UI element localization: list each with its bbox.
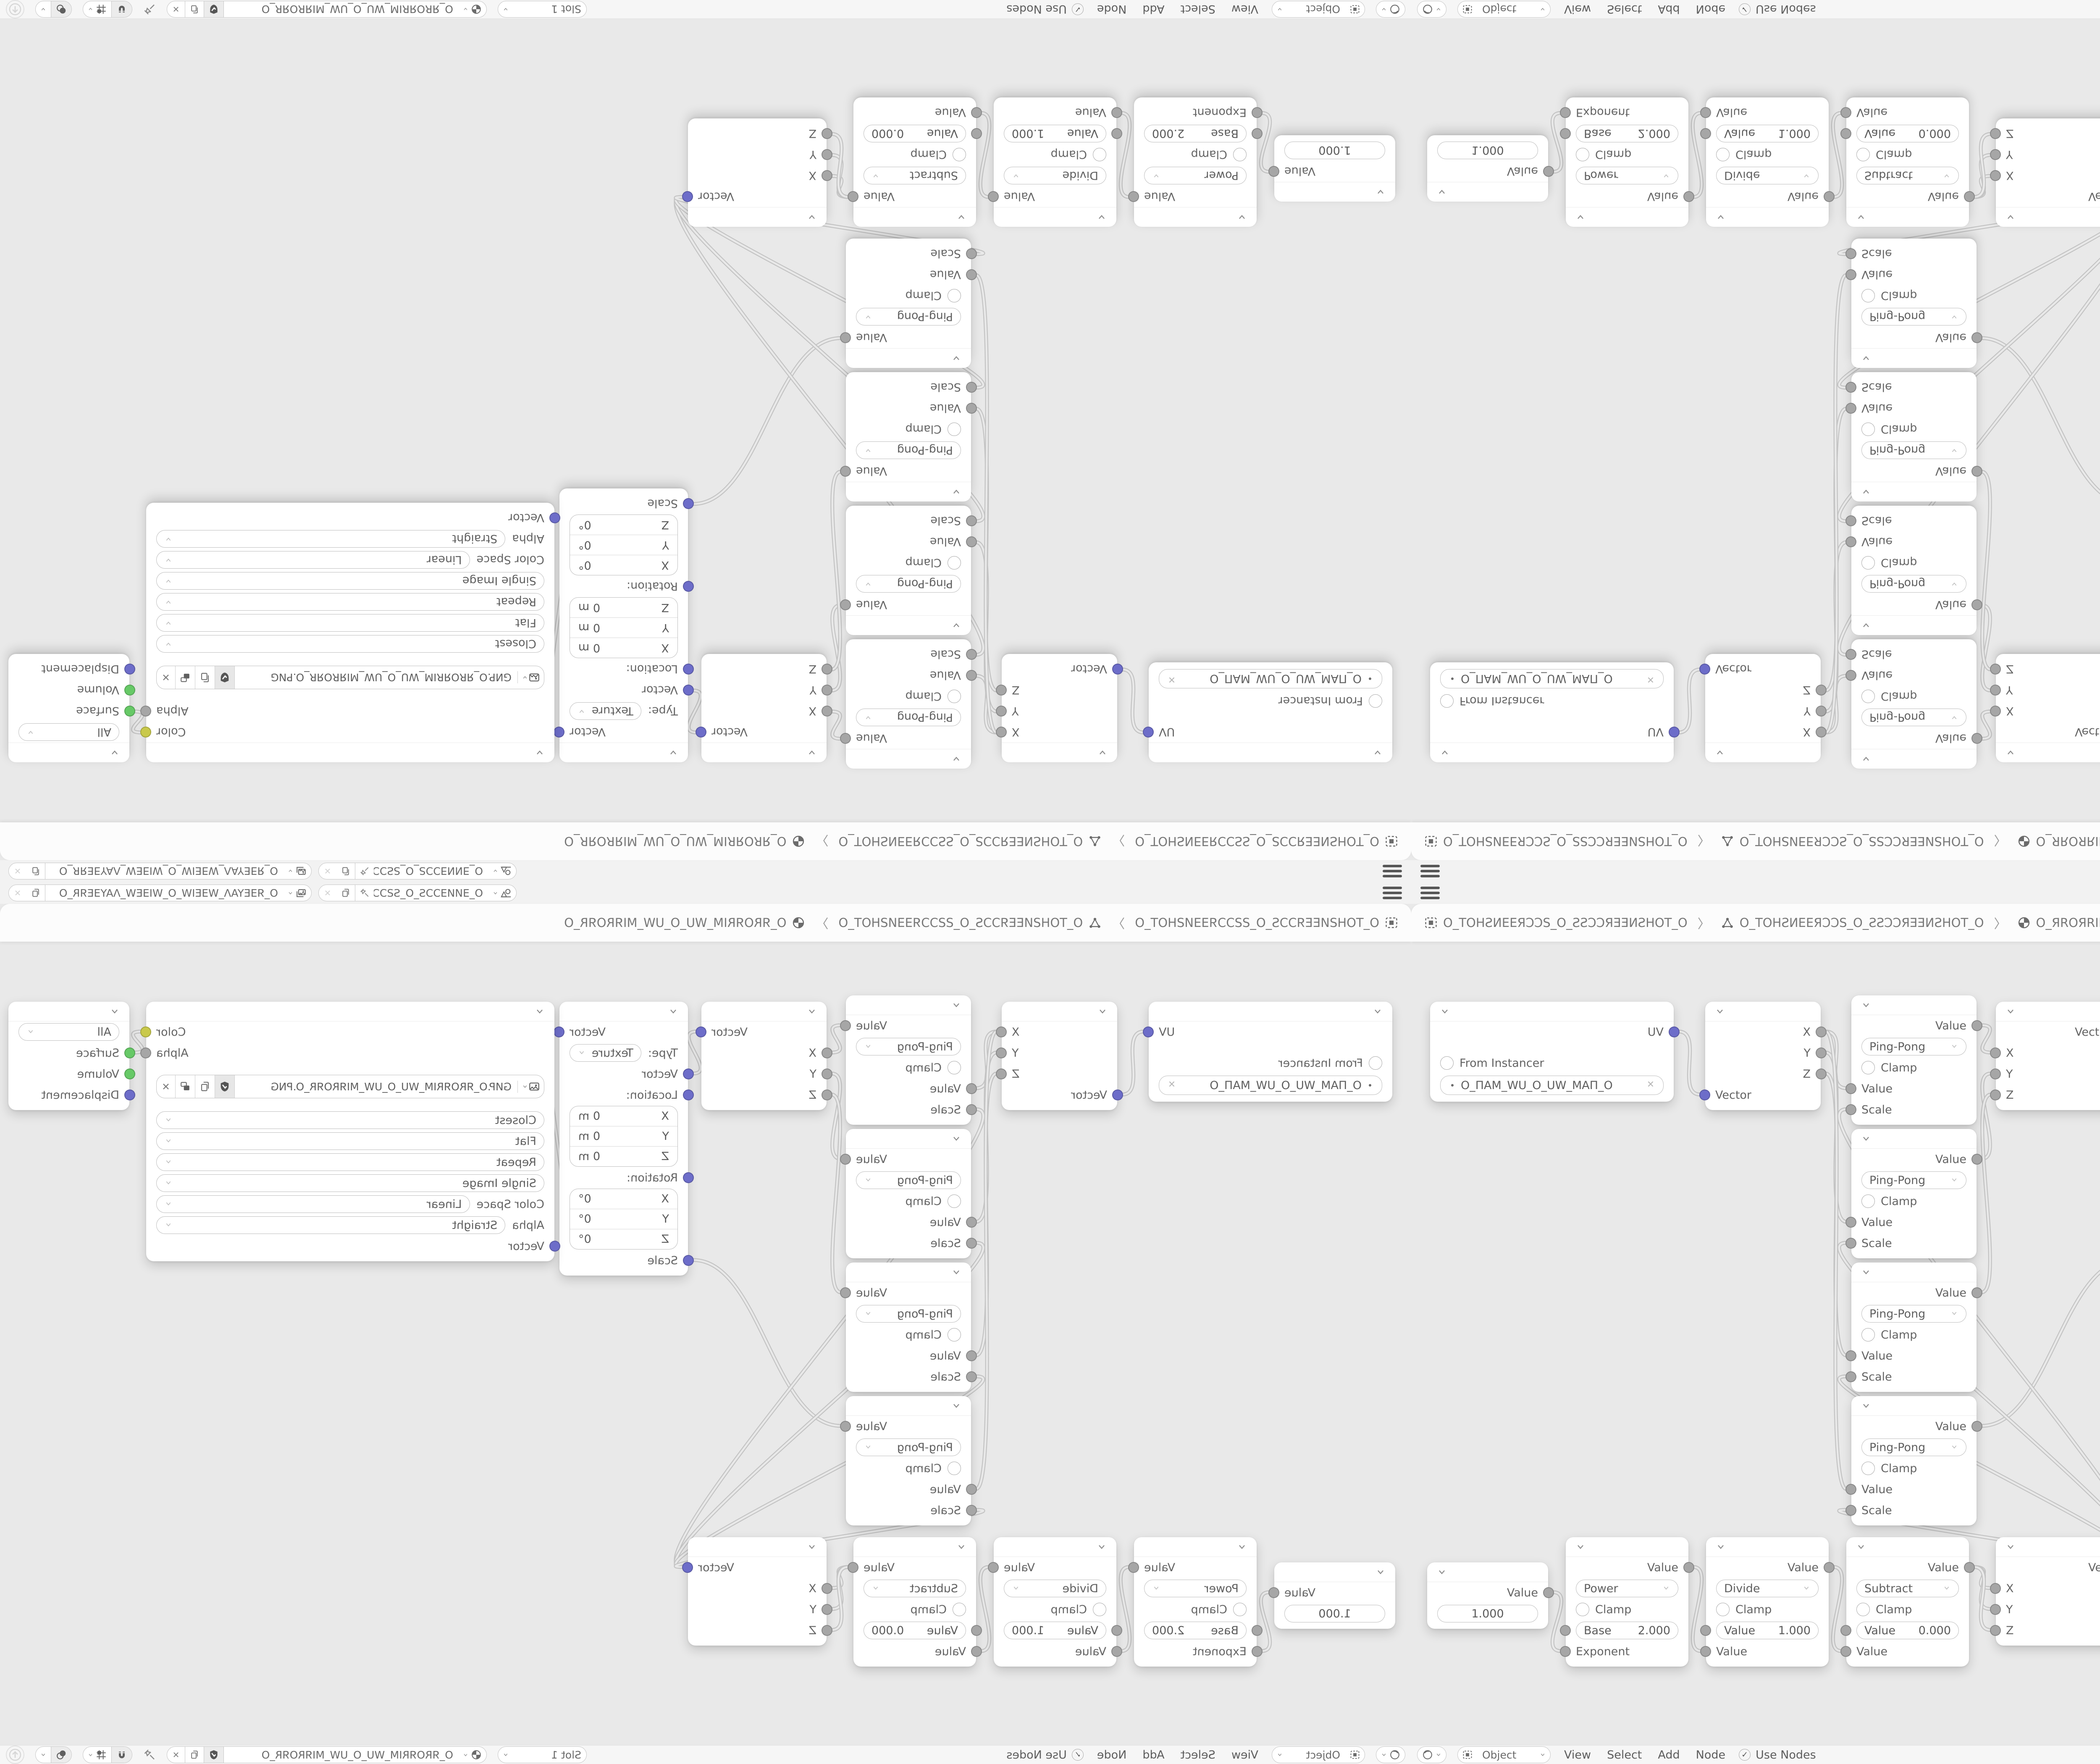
chevron-down-icon[interactable] <box>1856 212 1866 223</box>
node-value[interactable]: Value1.000 <box>1427 1562 1548 1629</box>
checkbox-clamp[interactable] <box>1716 148 1730 161</box>
slot-dropdown[interactable]: Slot 1 <box>498 1 587 18</box>
socket-vector[interactable] <box>696 727 706 738</box>
node-header-collapse[interactable] <box>1851 348 1977 368</box>
copy-icon[interactable] <box>195 666 215 689</box>
socket-value[interactable] <box>840 599 851 610</box>
socket-z[interactable] <box>1990 1089 2001 1100</box>
material-name[interactable]: O_ЯROЯRIM_WU_O_UW_MIЯROЯR_O <box>224 3 458 16</box>
menu-node[interactable]: Node <box>1693 1748 1728 1761</box>
shader-editor-icon[interactable] <box>1376 1 1405 17</box>
editor-type-dropdown[interactable] <box>1376 1746 1405 1763</box>
node-header-collapse[interactable] <box>846 615 971 635</box>
socket-scale[interactable] <box>966 1104 977 1115</box>
chevron-down-icon[interactable] <box>1097 747 1108 758</box>
dropdown-ping-pong[interactable]: Ping-Pong <box>856 1305 961 1323</box>
node-pingpong_2[interactable]: ValuePing-PongClampValueScale <box>846 1129 971 1258</box>
value-field[interactable]: Value0.000 <box>864 125 966 142</box>
socket-y[interactable] <box>996 706 1007 717</box>
node-header-collapse[interactable] <box>1134 207 1257 227</box>
dropdown-subtract[interactable]: Subtract <box>864 1580 966 1597</box>
socket-vector[interactable] <box>549 512 560 523</box>
socket-value[interactable] <box>1824 1562 1835 1573</box>
scene-icon[interactable] <box>488 863 516 879</box>
chevron-down-icon[interactable] <box>951 1400 962 1411</box>
menu-add[interactable]: Add <box>1655 1748 1682 1761</box>
value-field[interactable]: Base2.000 <box>1144 125 1247 142</box>
socket-vector[interactable] <box>554 1026 564 1037</box>
dropdown-power[interactable]: Power <box>1144 1580 1247 1597</box>
dropdown-flat[interactable]: Flat <box>156 1132 544 1150</box>
node-math_power[interactable]: ValuePowerClampBase2.000Exponent <box>1566 97 1688 227</box>
scene-name[interactable]: O_ƎИИƎƆƆS_O_SƧƆƆƎƎИ… <box>374 865 488 877</box>
dropdown-closest[interactable]: Closest <box>156 635 544 653</box>
chevron-down-icon[interactable] <box>1097 1006 1108 1017</box>
node-uv_map[interactable]: UVFrom InstancerO_ПAM_WU_O_UW_MAП_O <box>1149 662 1392 762</box>
socket-field[interactable] <box>1700 1625 1711 1636</box>
chevron-down-icon[interactable] <box>1375 1567 1386 1578</box>
socket-x[interactable] <box>996 1026 1007 1037</box>
vector-field-z[interactable]: Z0° <box>570 515 677 535</box>
chevron-down-icon[interactable] <box>1236 1541 1247 1552</box>
node-combine_xyz_b[interactable]: VectorXYZ <box>688 1537 827 1646</box>
node-header-collapse[interactable] <box>1851 482 1977 501</box>
chevron-down-icon[interactable] <box>2005 212 2016 223</box>
checkbox-from-instancer[interactable] <box>1440 1056 1454 1070</box>
shader-editor-icon[interactable] <box>1417 1 1446 17</box>
node-header-collapse[interactable] <box>1149 743 1392 762</box>
chevron-down-icon[interactable] <box>1439 1006 1450 1017</box>
chevron-down-icon[interactable] <box>668 1006 679 1017</box>
socket-rotation[interactable] <box>683 581 694 592</box>
socket-value[interactable] <box>1845 536 1856 547</box>
socket-value[interactable] <box>1971 1020 1982 1031</box>
node-header-collapse[interactable] <box>1566 207 1688 227</box>
socket-scale[interactable] <box>966 382 977 393</box>
use-nodes-toggle[interactable]: ✓Use Nodes <box>1739 3 1816 16</box>
chevron-down-icon[interactable] <box>1439 747 1450 758</box>
menu-view[interactable]: View <box>1229 3 1261 16</box>
breadcrumb-item[interactable]: O_TOHƧИEEЯƆƆS_O_ƧƧƆƆЯƎƎИƧHOT_O <box>1135 916 1399 930</box>
dropdown-texture[interactable]: Texture <box>570 1044 641 1062</box>
node-header-collapse[interactable] <box>1996 1002 2100 1021</box>
node-pingpong_4[interactable]: ValuePing-PongClampValueScale <box>846 1396 971 1525</box>
breadcrumb-item[interactable]: O_TOHƧИEEЯƆƆS_O_ƧƧƆƆЯƎƎИƧHOT_O <box>1720 834 1984 848</box>
checkbox-clamp[interactable] <box>1233 148 1247 161</box>
socket-uv[interactable] <box>1143 1026 1154 1037</box>
close-icon[interactable] <box>157 1075 176 1098</box>
value-field[interactable]: Value1.000 <box>1716 1622 1819 1639</box>
socket-uv[interactable] <box>1669 1026 1680 1037</box>
image-selector[interactable]: GИP.O_ЯROЯRIM_WU_O_UW_MIЯROЯR_O.PNG <box>156 666 544 689</box>
socket-value[interactable] <box>840 733 851 744</box>
socket-value[interactable] <box>1111 107 1122 118</box>
chevron-down-icon[interactable] <box>1372 1006 1383 1017</box>
socket-y[interactable] <box>996 1047 1007 1058</box>
shader-type-dropdown[interactable]: Object <box>1457 1746 1551 1763</box>
socket-color[interactable] <box>140 1026 151 1037</box>
checkbox-clamp[interactable] <box>1861 1462 1875 1475</box>
socket-field[interactable] <box>1840 1625 1851 1636</box>
dropdown-ping-pong[interactable]: Ping-Pong <box>856 1438 961 1456</box>
use-nodes-checkbox[interactable]: ✓ <box>1739 1749 1751 1761</box>
socket-vector[interactable] <box>696 1026 706 1037</box>
breadcrumb-item[interactable]: O_TOHƧИEEЯƆƆS_O_ƧƧƆƆЯƎƎИƧHOT_O <box>1720 916 1984 930</box>
node-header-collapse[interactable] <box>994 207 1116 227</box>
value-field[interactable]: Value0.000 <box>1856 1622 1959 1639</box>
uv-map-selector[interactable]: O_ПAM_WU_O_UW_MAП_O <box>1440 1076 1664 1095</box>
checkbox-clamp[interactable] <box>948 690 961 703</box>
image-name[interactable]: GИP.O_ЯROЯRIM_WU_O_UW_MIЯROЯR_O.PNG <box>235 1081 518 1093</box>
node-header-collapse[interactable] <box>1851 1263 1977 1282</box>
shader-type-value[interactable]: Object <box>1477 1749 1535 1761</box>
dropdown-repeat[interactable]: Repeat <box>156 593 544 611</box>
value-field[interactable]: Base2.000 <box>1576 125 1678 142</box>
socket-z[interactable] <box>1816 1068 1827 1079</box>
image-selector[interactable]: GИP.O_ЯROЯRIM_WU_O_UW_MIЯROЯR_O.PNG <box>156 1075 544 1098</box>
breadcrumb-item[interactable]: O_TOHƧИEEЯƆƆS_O_ƧƧƆƆЯƎƎИƧHOT_O <box>1424 916 1688 930</box>
socket-vector[interactable] <box>1112 1089 1123 1100</box>
dropdown-ping-pong[interactable]: Ping-Pong <box>1861 1305 1966 1323</box>
socket-value[interactable] <box>1971 466 1982 477</box>
node-header-collapse[interactable] <box>1851 749 1977 769</box>
stack-icon[interactable] <box>176 666 195 689</box>
menu-node[interactable]: Node <box>1095 1748 1129 1761</box>
socket-z[interactable] <box>822 1089 832 1100</box>
dropdown-closest[interactable]: Closest <box>156 1111 544 1129</box>
shader-type-dropdown[interactable]: Object <box>1272 1 1365 18</box>
socket-field[interactable] <box>1252 1625 1263 1636</box>
socket-value[interactable] <box>1971 1287 1982 1298</box>
value-field[interactable]: 1.000 <box>1284 142 1385 159</box>
chevron-down-icon[interactable] <box>956 1541 967 1552</box>
node-header-collapse[interactable] <box>846 482 971 501</box>
socket-value[interactable] <box>1683 191 1694 202</box>
socket-rotation[interactable] <box>683 1172 694 1183</box>
node-pingpong_1[interactable]: ValuePing-PongClampValueScale <box>846 995 971 1125</box>
socket-scale[interactable] <box>1845 1371 1856 1382</box>
menu-select[interactable]: Select <box>1604 3 1644 16</box>
socket-value[interactable] <box>1700 107 1711 118</box>
socket-field[interactable] <box>1111 128 1122 139</box>
socket-uv[interactable] <box>1143 727 1154 738</box>
chevron-down-icon[interactable] <box>1372 747 1383 758</box>
pin-icon[interactable] <box>355 885 374 901</box>
menu-view[interactable]: View <box>1562 1748 1593 1761</box>
chevron-down-icon[interactable] <box>1861 753 1872 764</box>
node-image_texture[interactable]: ColorAlphaGИP.O_ЯROЯRIM_WU_O_UW_MIЯROЯR_… <box>146 503 554 762</box>
image-name[interactable]: GИP.O_ЯROЯRIM_WU_O_UW_MIЯROЯR_O.PNG <box>235 672 518 684</box>
socket-field[interactable] <box>1560 128 1571 139</box>
chevron-down-icon[interactable] <box>951 1133 962 1144</box>
copy-icon[interactable] <box>185 1747 204 1763</box>
node-header-collapse[interactable] <box>853 207 976 227</box>
socket-y[interactable] <box>1990 1068 2001 1079</box>
scene-selector[interactable]: O_ƎИИƎƆƆS_O_SƧƆƆƎƎИ… <box>318 863 517 879</box>
close-icon[interactable] <box>167 1747 185 1763</box>
node-header-collapse[interactable] <box>846 348 971 368</box>
socket-volume[interactable] <box>124 685 135 696</box>
node-math_subtract[interactable]: ValueSubtractClampValue0.000Value <box>853 1537 976 1667</box>
socket-field[interactable] <box>1111 1625 1122 1636</box>
shield-check-icon[interactable] <box>204 1 224 17</box>
socket-field[interactable] <box>1560 1625 1571 1636</box>
node-header-collapse[interactable] <box>846 749 971 769</box>
chevron-down-icon[interactable] <box>109 747 120 758</box>
checkbox-from-instancer[interactable] <box>1369 694 1382 708</box>
value-field[interactable]: 1.000 <box>1437 1605 1538 1622</box>
scene-icon[interactable] <box>488 885 516 901</box>
checkbox-clamp[interactable] <box>1093 1603 1106 1616</box>
socket-value[interactable] <box>1111 1646 1122 1657</box>
checkbox-clamp[interactable] <box>1856 148 1870 161</box>
socket-x[interactable] <box>1816 1026 1827 1037</box>
node-value[interactable]: Value1.000 <box>1274 135 1395 202</box>
dropdown-linear[interactable]: Linear <box>156 1195 470 1213</box>
node-header-collapse[interactable] <box>846 1396 971 1416</box>
pin-icon[interactable] <box>143 1748 156 1761</box>
dropdown-all[interactable]: All <box>18 1023 119 1041</box>
slot-value[interactable]: Slot 1 <box>513 3 586 16</box>
chevron-down-icon[interactable] <box>951 486 962 497</box>
chevron-down-icon[interactable] <box>806 212 817 223</box>
shader-editor-icon[interactable] <box>1376 1747 1405 1763</box>
slot-value[interactable]: Slot 1 <box>513 1749 586 1761</box>
node-header-collapse[interactable] <box>1996 207 2100 227</box>
socket-field[interactable] <box>971 128 982 139</box>
node-pingpong_4[interactable]: ValuePing-PongClampValueScale <box>1851 1396 1977 1525</box>
menu-add[interactable]: Add <box>1140 3 1167 16</box>
node-header-collapse[interactable] <box>846 1129 971 1149</box>
node-image_texture[interactable]: ColorAlphaGИP.O_ЯROЯRIM_WU_O_UW_MIЯROЯR_… <box>146 1002 554 1261</box>
socket-scale[interactable] <box>1845 1104 1856 1115</box>
socket-field[interactable] <box>1840 128 1851 139</box>
socket-value[interactable] <box>1845 1217 1856 1228</box>
copy-icon[interactable] <box>336 863 355 879</box>
chevron-down-icon[interactable] <box>806 747 817 758</box>
dropdown-ping-pong[interactable]: Ping-Pong <box>1861 308 1966 325</box>
socket-scale[interactable] <box>966 1238 977 1249</box>
node-header-collapse[interactable] <box>1427 182 1548 202</box>
node-separate_xyz[interactable]: XYZVector <box>1705 1002 1821 1110</box>
node-math_divide[interactable]: ValueDivideClampValue1.000Value <box>1706 97 1829 227</box>
node-header-collapse[interactable] <box>688 1537 827 1557</box>
socket-field[interactable] <box>971 1625 982 1636</box>
shader-type-dropdown[interactable]: Object <box>1272 1746 1365 1763</box>
socket-value[interactable] <box>1845 1350 1856 1361</box>
breadcrumb-item[interactable]: O_ЯROЯRIM_WU_O_UW_MIЯROЯR_O <box>2017 834 2100 848</box>
chevron-down-icon[interactable] <box>2005 1006 2016 1017</box>
chevron-down-icon[interactable] <box>1375 186 1386 197</box>
breadcrumb-item[interactable]: O_ЯROЯRIM_WU_O_UW_MIЯROЯR_O <box>2017 916 2100 930</box>
editor-type-dropdown[interactable] <box>1376 1 1405 18</box>
checkbox-clamp[interactable] <box>1861 289 1875 302</box>
shield-check-icon[interactable] <box>204 1747 224 1763</box>
chevron-down-icon[interactable] <box>1096 212 1107 223</box>
socket-value[interactable] <box>1700 1646 1711 1657</box>
node-combine_xyz_a[interactable]: VectorXYZ <box>701 654 827 762</box>
node-math_power[interactable]: ValuePowerClampBase2.000Exponent <box>1134 1537 1257 1667</box>
socket-value[interactable] <box>1845 670 1856 681</box>
stack-icon[interactable] <box>176 1075 195 1098</box>
socket-vector[interactable] <box>683 1068 694 1079</box>
socket-field[interactable] <box>1252 128 1263 139</box>
snap-grid-icon[interactable] <box>83 1 112 17</box>
socket-y[interactable] <box>822 149 832 160</box>
node-material_output[interactable]: AllSurfaceVolumeDisplacement <box>8 654 129 762</box>
socket-value[interactable] <box>840 332 851 343</box>
socket-scale[interactable] <box>1845 1505 1856 1516</box>
socket-location[interactable] <box>683 1089 694 1100</box>
socket-location[interactable] <box>683 664 694 675</box>
breadcrumb-item[interactable]: O_TOHƧИEEЯƆƆS_O_ƧƧƆƆЯƎƎИƧHOT_O <box>1135 834 1399 848</box>
uv-map-selector[interactable]: O_ПAM_WU_O_UW_MAП_O <box>1159 1076 1382 1095</box>
node-header-collapse[interactable] <box>1996 1537 2100 1557</box>
dropdown-all[interactable]: All <box>18 723 119 741</box>
vector-field-y[interactable]: Y0 m <box>570 1126 677 1146</box>
chevron-down-icon[interactable] <box>668 747 679 758</box>
vector-field-y[interactable]: Y0° <box>570 1209 677 1229</box>
chevron-down-icon[interactable] <box>534 747 545 758</box>
breadcrumb-item[interactable]: O_TOHƧИEEЯƆƆS_O_ƧƧƆƆЯƎƎИƧHOT_O <box>838 916 1102 930</box>
node-header-collapse[interactable] <box>146 743 554 762</box>
chevron-down-icon[interactable] <box>806 1006 817 1017</box>
copy-icon[interactable] <box>185 1 204 17</box>
node-math_divide[interactable]: ValueDivideClampValue1.000Value <box>994 97 1116 227</box>
socket-x[interactable] <box>822 1047 832 1058</box>
socket-scale[interactable] <box>966 1505 977 1516</box>
socket-value[interactable] <box>840 1421 851 1432</box>
chevron-down-icon[interactable] <box>951 620 962 631</box>
socket-scale[interactable] <box>966 649 977 660</box>
socket-value[interactable] <box>840 1154 851 1165</box>
node-pingpong_3[interactable]: ValuePing-PongClampValueScale <box>846 1263 971 1392</box>
socket-z[interactable] <box>1990 128 2001 139</box>
socket-value[interactable] <box>988 1562 999 1573</box>
checkbox-clamp[interactable] <box>948 289 961 302</box>
node-header-collapse[interactable] <box>1851 1396 1977 1416</box>
dropdown-ping-pong[interactable]: Ping-Pong <box>1861 1171 1966 1189</box>
checkbox-clamp[interactable] <box>1856 1603 1870 1616</box>
vector-field-x[interactable]: X0 m <box>570 1106 677 1126</box>
socket-value[interactable] <box>848 191 858 202</box>
value-field[interactable]: Value1.000 <box>1004 1622 1106 1639</box>
chevron-down-icon[interactable] <box>1861 1267 1872 1278</box>
shader-type-value[interactable]: Object <box>1287 3 1345 16</box>
socket-x[interactable] <box>822 706 832 717</box>
socket-value[interactable] <box>840 1287 851 1298</box>
chevron-down-icon[interactable] <box>1861 1400 1872 1411</box>
menu-add[interactable]: Add <box>1655 3 1682 16</box>
node-combine_xyz_b[interactable]: VectorXYZ <box>688 118 827 227</box>
socket-value[interactable] <box>1845 403 1856 414</box>
dropdown-single-image[interactable]: Single Image <box>156 572 544 590</box>
socket-scale[interactable] <box>1845 515 1856 526</box>
node-header-collapse[interactable] <box>1705 1002 1821 1021</box>
node-pingpong_2[interactable]: ValuePing-PongClampValueScale <box>1851 1129 1977 1258</box>
node-pingpong_3[interactable]: ValuePing-PongClampValueScale <box>846 372 971 501</box>
scene-name[interactable]: O_ƎИИƎƆƆS_O_SƧƆƆƎƎИ… <box>374 887 488 899</box>
view-layer-name[interactable]: O_ЯƎEYAΛ_WƎEIW_O_WIƎEW_ΛAYƎEЯR_O <box>45 865 283 877</box>
chevron-down-icon[interactable] <box>2005 747 2016 758</box>
chevron-down-icon[interactable] <box>1714 1006 1725 1017</box>
shader-editor-icon[interactable] <box>1417 1747 1446 1763</box>
socket-surface[interactable] <box>124 706 135 717</box>
socket-surface[interactable] <box>124 1047 135 1058</box>
node-header-collapse[interactable] <box>1851 995 1977 1015</box>
socket-value[interactable] <box>1845 1083 1856 1094</box>
value-field[interactable]: Value0.000 <box>1856 125 1959 142</box>
chevron-down-icon[interactable] <box>1436 1567 1447 1578</box>
checkbox-from-instancer[interactable] <box>1440 694 1454 708</box>
checkbox-clamp[interactable] <box>948 1194 961 1208</box>
view-layer-selector[interactable]: O_ЯƎEYAΛ_WƎEIW_O_WIƎEW_ΛAYƎEЯR_O <box>8 885 312 901</box>
node-pingpong_1[interactable]: ValuePing-PongClampValueScale <box>846 639 971 769</box>
dropdown-ping-pong[interactable]: Ping-Pong <box>1861 441 1966 459</box>
socket-x[interactable] <box>1990 1047 2001 1058</box>
checkbox-clamp[interactable] <box>1093 148 1106 161</box>
chevron-down-icon[interactable] <box>1715 212 1726 223</box>
node-header-collapse[interactable] <box>846 995 971 1015</box>
chevron-down-icon[interactable] <box>109 1006 120 1017</box>
editor-type-dropdown[interactable] <box>1417 1 1446 18</box>
socket-value[interactable] <box>1268 166 1279 177</box>
node-pingpong_2[interactable]: ValuePing-PongClampValueScale <box>1851 506 1977 635</box>
dropdown-ping-pong[interactable]: Ping-Pong <box>1861 709 1966 726</box>
node-header-collapse[interactable] <box>1002 1002 1117 1021</box>
socket-value[interactable] <box>1964 191 1975 202</box>
menu-node[interactable]: Node <box>1693 3 1728 16</box>
node-pingpong_2[interactable]: ValuePing-PongClampValueScale <box>846 506 971 635</box>
chevron-down-icon[interactable] <box>951 1000 962 1011</box>
vector-field-y[interactable]: Y0 m <box>570 618 677 638</box>
socket-z[interactable] <box>996 1068 1007 1079</box>
socket-value[interactable] <box>1543 1587 1554 1598</box>
material-icon[interactable] <box>458 1 486 17</box>
socket-value[interactable] <box>1128 191 1139 202</box>
node-header-collapse[interactable] <box>1430 743 1674 762</box>
socket-scale[interactable] <box>966 515 977 526</box>
overlap-circles-icon[interactable] <box>51 1 71 17</box>
node-math_subtract[interactable]: ValueSubtractClampValue0.000Value <box>1846 1537 1969 1667</box>
node-separate_xyz[interactable]: XYZVector <box>1002 654 1117 762</box>
copy-icon[interactable] <box>26 863 45 879</box>
node-header-collapse[interactable] <box>146 1002 554 1021</box>
menu-add[interactable]: Add <box>1140 1748 1167 1761</box>
socket-vector[interactable] <box>549 1241 560 1252</box>
scene-selector[interactable]: O_ƎИИƎƆƆS_O_SƧƆƆƎƎИ… <box>318 885 517 901</box>
overlap-circles-icon[interactable] <box>51 1747 71 1763</box>
pin-icon[interactable] <box>355 863 374 879</box>
socket-value[interactable] <box>1268 1587 1279 1598</box>
socket-value[interactable] <box>1971 1154 1982 1165</box>
shield-check-icon[interactable] <box>215 1075 235 1098</box>
socket-vector[interactable] <box>682 1562 693 1573</box>
socket-vector[interactable] <box>683 685 694 696</box>
close-icon[interactable] <box>1167 1079 1177 1092</box>
arrow-up-circle-icon[interactable] <box>6 1746 24 1764</box>
checkbox-clamp[interactable] <box>948 1328 961 1341</box>
dropdown-subtract[interactable]: Subtract <box>864 167 966 184</box>
socket-value[interactable] <box>966 536 977 547</box>
chevron-down-icon[interactable] <box>534 1006 545 1017</box>
chevron-down-icon[interactable] <box>1575 1541 1586 1552</box>
use-nodes-checkbox[interactable]: ✓ <box>1739 3 1751 15</box>
dropdown-ping-pong[interactable]: Ping-Pong <box>856 441 961 459</box>
close-icon[interactable] <box>1646 672 1656 685</box>
magnet-icon[interactable] <box>112 1 132 17</box>
chevron-down-icon[interactable] <box>1715 1541 1726 1552</box>
